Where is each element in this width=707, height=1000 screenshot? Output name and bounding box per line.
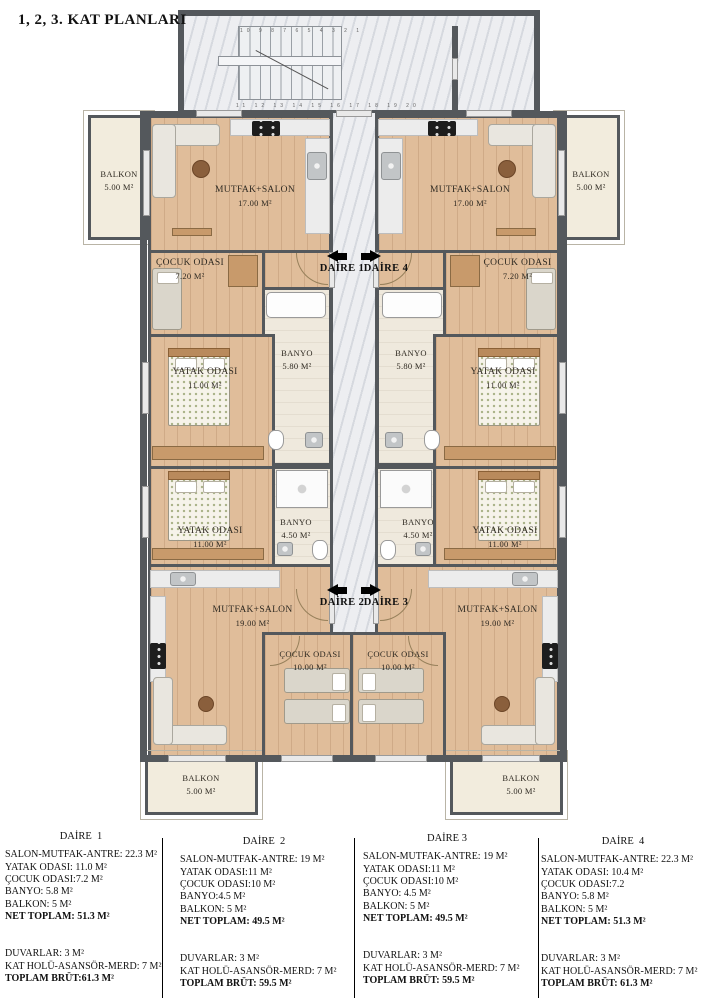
sofa (153, 677, 173, 745)
legend-row: YATAK ODASI: 11.0 M² (5, 862, 157, 874)
label-d1-banyo: BANYO5.80 M² (262, 347, 332, 373)
legend-daire-4: DAİRE 4 SALON-MUTFAK-ANTRE: 22.3 M² YATA… (541, 836, 705, 990)
label-d1-mutfak-salon: MUTFAK+SALON17.00 M² (185, 183, 325, 210)
window (375, 755, 427, 762)
tv-console (172, 228, 212, 236)
toilet (312, 540, 328, 560)
legend-row: BALKON: 5 M² (363, 901, 531, 913)
sink (415, 542, 431, 556)
legend-row: KAT HOLÜ-ASANSÖR-MERD: 7 M² (5, 961, 157, 973)
tv-console (496, 228, 536, 236)
label-d4-cocuk: ÇOCUK ODASI7.20 M² (455, 256, 580, 283)
balcony-door (482, 755, 540, 762)
legend-row: YATAK ODASI:11 M² (180, 867, 348, 879)
bathtub (266, 292, 326, 318)
kitchen-counter (230, 119, 330, 136)
sink (512, 572, 538, 586)
legend-row: SALON-MUTFAK-ANTRE: 22.3 M² (5, 849, 157, 861)
legend-row: ÇOCUK ODASI:10 M² (363, 876, 531, 888)
legend-title: DAİRE 4 (541, 836, 705, 848)
label-d4-mutfak-salon: MUTFAK+SALON17.00 M² (400, 183, 540, 210)
sink (277, 542, 293, 556)
legend-daire-3: DAİRE 3 SALON-MUTFAK-ANTRE: 19 M² YATAK … (363, 833, 531, 987)
legend-row: BANYO: 5.8 M² (541, 891, 705, 903)
legend-row: YATAK ODASI: 10.4 M² (541, 867, 705, 879)
single-bed (284, 699, 350, 724)
legend-gross-total: TOPLAM BRÜT: 61.3 M² (541, 978, 705, 990)
label-daire-4: DAİRE 4 (360, 263, 412, 274)
label-d2-mutfak-salon: MUTFAK+SALON19.00 M² (185, 603, 320, 630)
sink (307, 152, 327, 180)
label-d1-cocuk: ÇOCUK ODASI7.20 M² (130, 256, 250, 283)
legend-divider (162, 838, 163, 998)
bathtub (382, 292, 442, 318)
label-d1-balkon: BALKON5.00 M² (90, 168, 148, 194)
stair-landing (218, 56, 342, 66)
stair-numbers-bottom: 11 12 13 14 15 16 17 18 19 20 (236, 103, 420, 109)
legend-row: BANYO:4.5 M² (180, 891, 348, 903)
legend-row: BANYO: 4.5 M² (363, 888, 531, 900)
arrow-left-icon (327, 584, 347, 596)
legend-row: DUVARLAR: 3 M² (180, 953, 348, 965)
label-d4-banyo: BANYO5.80 M² (376, 347, 446, 373)
legend-row: BALKON: 5 M² (541, 904, 705, 916)
legend-title: DAİRE 3 (363, 833, 531, 845)
window (281, 755, 333, 762)
legend-net-total: NET TOPLAM: 51.3 M² (541, 916, 705, 928)
kitchen-counter (428, 570, 558, 588)
sink (305, 432, 323, 448)
toilet (268, 430, 284, 450)
legend-divider (354, 838, 355, 998)
legend-row: YATAK ODASI:11 M² (363, 864, 531, 876)
legend-row: ÇOCUK ODASI:7.2 (541, 879, 705, 891)
legend-daire-1: DAİRE 1 SALON-MUTFAK-ANTRE: 22.3 M² YATA… (5, 831, 157, 985)
sink (381, 152, 401, 180)
balcony-door (168, 755, 226, 762)
corridor (330, 113, 378, 640)
coffee-table (494, 696, 510, 712)
label-daire-3: DAİRE 3 (360, 597, 412, 608)
wardrobe (152, 446, 264, 460)
stove (252, 121, 280, 136)
legend-row: KAT HOLÜ-ASANSÖR-MERD: 7 M² (180, 966, 348, 978)
label-d4-balkon: BALKON5.00 M² (562, 168, 620, 194)
label-d2-yatak: YATAK ODASI11.00 M² (150, 524, 270, 551)
coffee-table (192, 160, 210, 178)
legend-title: DAİRE 2 (180, 836, 348, 848)
arrow-right-icon (361, 584, 381, 596)
legend-row: ÇOCUK ODASI:10 M² (180, 879, 348, 891)
label-d2-banyo: BANYO4.50 M² (266, 516, 326, 542)
wardrobe (444, 446, 556, 460)
window (142, 486, 149, 538)
legend-row: DUVARLAR: 3 M² (541, 953, 705, 965)
shower (380, 470, 432, 508)
shower (276, 470, 328, 508)
legend-row: BALKON: 5 M² (180, 904, 348, 916)
corridor-opening (336, 110, 372, 117)
stove (428, 121, 456, 136)
label-d1-yatak: YATAK ODASI11.00 M² (145, 365, 265, 392)
legend-row: ÇOCUK ODASI:7.2 M² (5, 874, 157, 886)
legend-net-total: NET TOPLAM: 51.3 M² (5, 911, 157, 923)
elevator-door (452, 58, 458, 80)
legend-row: KAT HOLÜ-ASANSÖR-MERD: 7 M² (363, 963, 531, 975)
sofa (535, 677, 555, 745)
legend-net-total: NET TOPLAM: 49.5 M² (180, 916, 348, 928)
legend-gross-total: TOPLAM BRÜT: 59.5 M² (363, 975, 531, 987)
label-d3-yatak: YATAK ODASI11.00 M² (445, 524, 565, 551)
legend-row: DUVARLAR: 3 M² (363, 950, 531, 962)
legend-row: SALON-MUTFAK-ANTRE: 19 M² (363, 851, 531, 863)
single-bed (358, 699, 424, 724)
legend-gross-total: TOPLAM BRÜT: 59.5 M² (180, 978, 348, 990)
legend-row: KAT HOLÜ-ASANSÖR-MERD: 7 M² (541, 966, 705, 978)
arrow-left-icon (327, 250, 347, 262)
arrow-right-icon (361, 250, 381, 262)
legend-gross-total: TOPLAM BRÜT:61.3 M² (5, 973, 157, 985)
label-d3-balkon: BALKON5.00 M² (490, 772, 552, 798)
coffee-table (198, 696, 214, 712)
floor-plan-sheet: 1, 2, 3. KAT PLANLARI 10 9 8 7 6 5 4 3 2… (0, 0, 707, 1000)
page-title: 1, 2, 3. KAT PLANLARI (18, 12, 187, 29)
legend-row: SALON-MUTFAK-ANTRE: 22.3 M² (541, 854, 705, 866)
label-d2-balkon: BALKON5.00 M² (170, 772, 232, 798)
coffee-table (498, 160, 516, 178)
label-d3-banyo: BANYO4.50 M² (388, 516, 448, 542)
stair-numbers-top: 10 9 8 7 6 5 4 3 2 1 (240, 28, 363, 34)
kitchen-counter (150, 596, 166, 682)
label-d4-yatak: YATAK ODASI11.00 M² (443, 365, 563, 392)
sofa (152, 124, 176, 198)
label-d3-cocuk: ÇOCUK ODASI10.00 M² (350, 648, 446, 674)
window (196, 110, 242, 117)
legend-divider (538, 838, 539, 998)
label-d3-mutfak-salon: MUTFAK+SALON19.00 M² (430, 603, 565, 630)
label-d2-cocuk: ÇOCUK ODASI10.00 M² (262, 648, 358, 674)
window (466, 110, 512, 117)
legend-title: DAİRE 1 (5, 831, 157, 843)
legend-row: SALON-MUTFAK-ANTRE: 19 M² (180, 854, 348, 866)
legend-daire-2: DAİRE 2 SALON-MUTFAK-ANTRE: 19 M² YATAK … (180, 836, 348, 990)
legend-row: BANYO: 5.8 M² (5, 886, 157, 898)
sink (385, 432, 403, 448)
legend-net-total: NET TOPLAM: 49.5 M² (363, 913, 531, 925)
toilet (424, 430, 440, 450)
sink (170, 572, 196, 586)
legend-row: DUVARLAR: 3 M² (5, 948, 157, 960)
toilet (380, 540, 396, 560)
stove (542, 643, 558, 669)
legend-row: BALKON: 5 M² (5, 899, 157, 911)
stove (150, 643, 166, 669)
